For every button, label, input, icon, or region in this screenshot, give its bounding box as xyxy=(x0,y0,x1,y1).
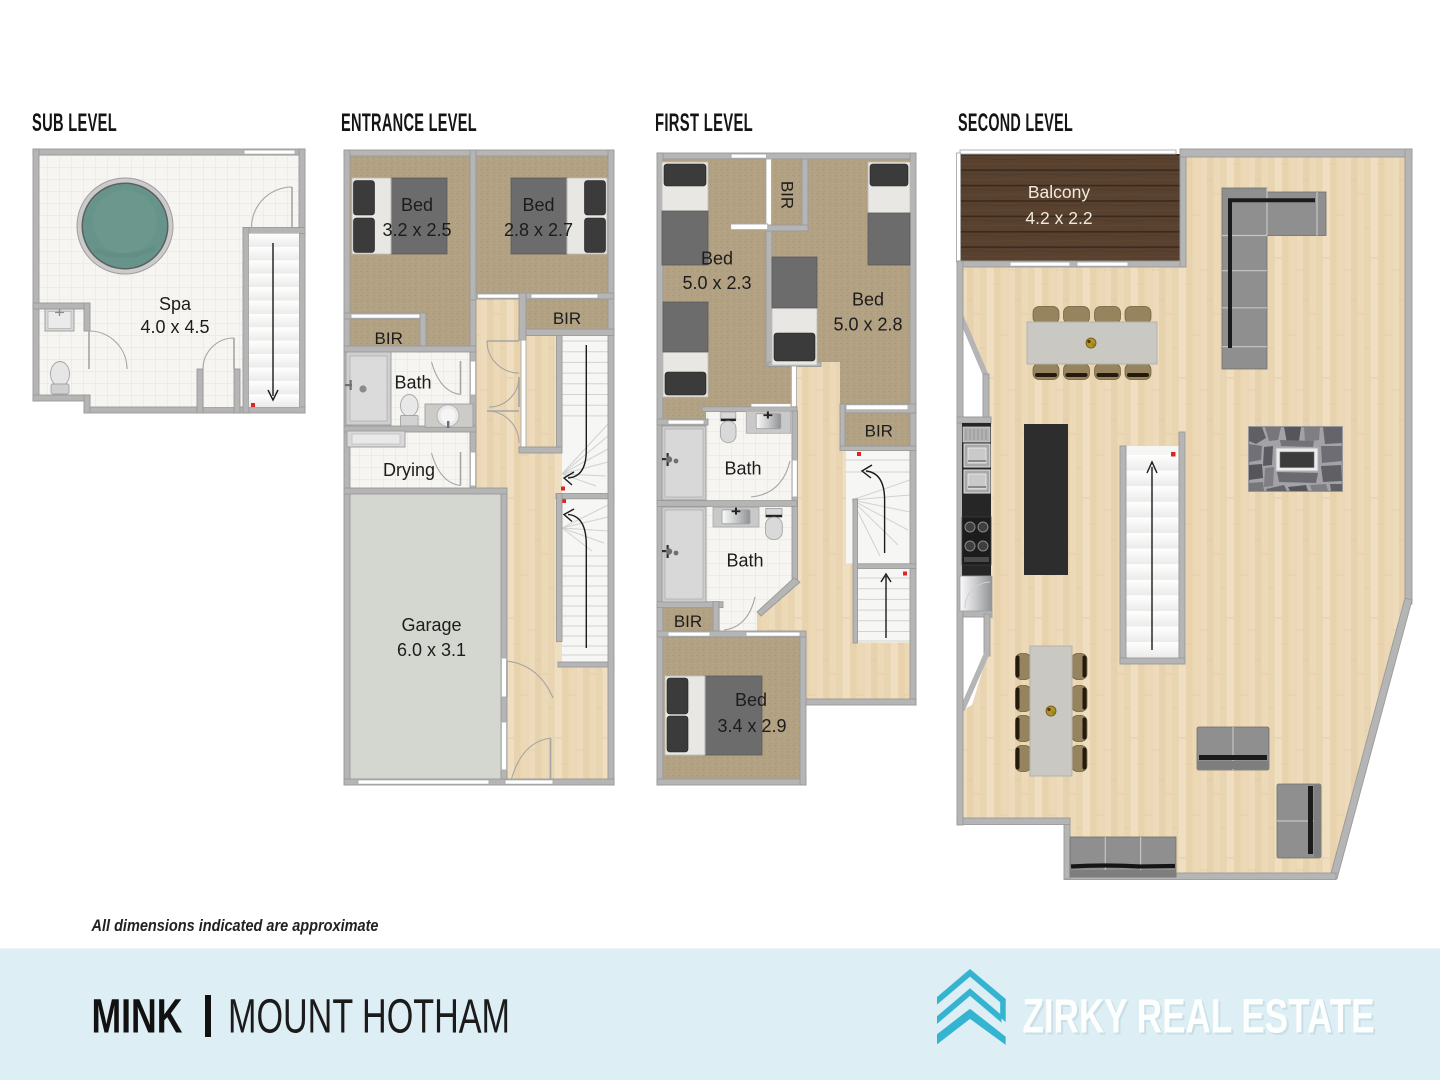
svg-text:BIR: BIR xyxy=(553,309,581,328)
svg-text:4.0 x 4.5: 4.0 x 4.5 xyxy=(140,317,209,337)
svg-text:4.2 x 2.2: 4.2 x 2.2 xyxy=(1025,208,1092,228)
svg-text:ZIRKY REAL ESTATE: ZIRKY REAL ESTATE xyxy=(1023,991,1375,1044)
svg-text:ENTRANCE LEVEL: ENTRANCE LEVEL xyxy=(341,109,477,137)
svg-text:Spa: Spa xyxy=(159,294,192,314)
svg-text:Bed: Bed xyxy=(522,195,554,215)
svg-text:6.0 x 3.1: 6.0 x 3.1 xyxy=(397,640,466,660)
svg-text:3.2 x 2.5: 3.2 x 2.5 xyxy=(382,220,451,240)
svg-text:Bed: Bed xyxy=(852,290,884,310)
svg-text:Garage: Garage xyxy=(401,615,461,635)
svg-text:MOUNT HOTHAM: MOUNT HOTHAM xyxy=(228,991,510,1044)
svg-text:SUB LEVEL: SUB LEVEL xyxy=(32,109,117,137)
svg-text:BIR: BIR xyxy=(674,612,702,631)
svg-text:Bath: Bath xyxy=(394,373,431,393)
svg-text:Bed: Bed xyxy=(401,195,433,215)
svg-text:Drying: Drying xyxy=(383,460,435,480)
svg-text:2.8 x 2.7: 2.8 x 2.7 xyxy=(504,220,573,240)
svg-text:Bath: Bath xyxy=(724,459,761,479)
svg-text:BIR: BIR xyxy=(778,181,797,209)
svg-text:FIRST LEVEL: FIRST LEVEL xyxy=(655,109,753,137)
svg-text:All dimensions indicated are a: All dimensions indicated are approximate xyxy=(91,917,379,935)
svg-text:5.0 x 2.8: 5.0 x 2.8 xyxy=(833,315,902,335)
svg-text:5.0 x 2.3: 5.0 x 2.3 xyxy=(682,273,751,293)
svg-text:Bed: Bed xyxy=(735,690,767,710)
svg-text:BIR: BIR xyxy=(865,422,893,441)
svg-text:MINK: MINK xyxy=(92,991,183,1044)
svg-text:Bed: Bed xyxy=(701,249,733,269)
svg-text:Bath: Bath xyxy=(726,551,763,571)
svg-text:Balcony: Balcony xyxy=(1028,182,1091,202)
svg-text:SECOND LEVEL: SECOND LEVEL xyxy=(958,109,1073,137)
svg-text:3.4 x 2.9: 3.4 x 2.9 xyxy=(717,716,786,736)
svg-text:BIR: BIR xyxy=(375,329,403,348)
